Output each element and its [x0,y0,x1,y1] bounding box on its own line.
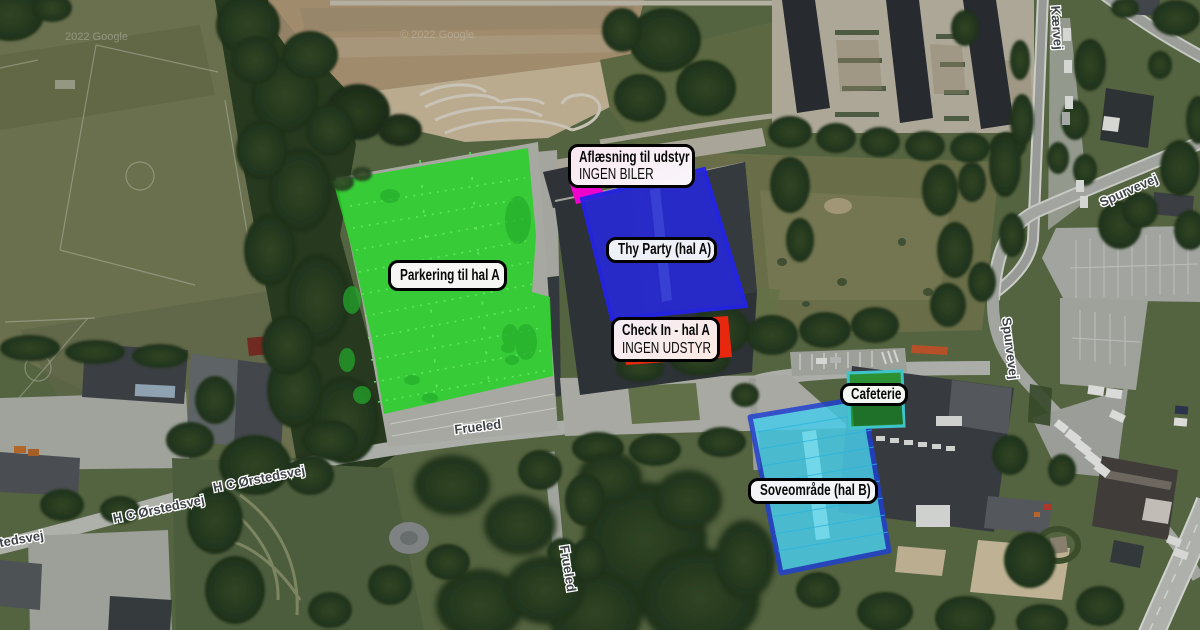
svg-text:Kærvej: Kærvej [1048,5,1066,50]
svg-text:© 2022 Google: © 2022 Google [400,29,474,41]
svg-text:2022 Google: 2022 Google [65,31,128,43]
